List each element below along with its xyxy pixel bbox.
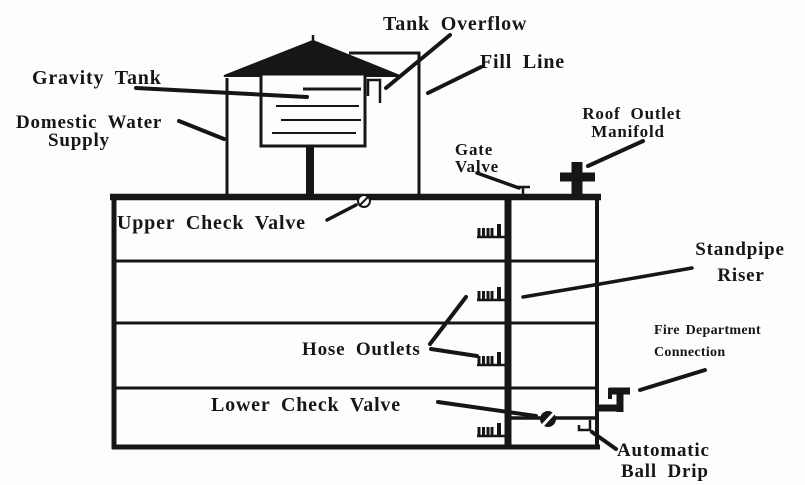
label-upper-check-valve: Upper Check Valve — [117, 212, 306, 234]
label-standpipe-riser-line1: Standpipe — [695, 239, 785, 260]
leader-fire-department-connection — [640, 370, 705, 390]
label-tank-overflow: Tank Overflow — [383, 13, 527, 35]
leader-standpipe-riser — [523, 268, 692, 297]
label-gate-valve-line2: Valve — [455, 157, 499, 176]
label-fire-department-connection-line1: Fire Department — [654, 323, 761, 338]
leader-lower-check-valve — [438, 402, 536, 416]
label-roof-outlet-manifold-line1: Roof Outlet — [582, 104, 681, 123]
fire-department-connection-symbol — [597, 388, 630, 412]
label-gravity-tank: Gravity Tank — [32, 67, 162, 89]
label-hose-outlets: Hose Outlets — [302, 339, 421, 360]
label-domestic-water-supply-line2: Supply — [48, 130, 110, 151]
label-automatic-ball-drip-line2: Ball Drip — [621, 461, 709, 482]
label-lower-check-valve: Lower Check Valve — [211, 394, 401, 416]
gravity-tank-body — [261, 74, 365, 146]
label-fire-department-connection-line2: Connection — [654, 345, 725, 360]
leader-upper-check-valve — [327, 205, 356, 220]
hose-outlet-symbol — [477, 224, 506, 238]
diagram-canvas: Tank Overflow Fill Line Gravity Tank Dom… — [0, 0, 805, 485]
label-roof-outlet-manifold-line2: Manifold — [591, 122, 664, 141]
leader-roof-outlet-manifold — [588, 141, 643, 166]
leader-fill-line — [428, 67, 481, 93]
upper-check-valve-symbol — [358, 195, 370, 207]
tank-roof — [224, 41, 400, 76]
hose-outlet-symbol — [477, 287, 506, 301]
label-automatic-ball-drip-line1: Automatic — [617, 440, 710, 461]
leader-hose-outlets-lower — [431, 349, 477, 356]
gravity-tank-assembly — [224, 35, 419, 199]
leader-hose-outlets-upper — [430, 297, 466, 344]
standpipe-system-diagram: Tank Overflow Fill Line Gravity Tank Dom… — [0, 0, 805, 485]
label-standpipe-riser-line2: Riser — [717, 265, 764, 286]
automatic-ball-drip-symbol — [579, 420, 590, 430]
leader-domestic-water-supply — [179, 121, 224, 139]
hose-outlet-symbol — [477, 352, 506, 366]
label-fill-line: Fill Line — [480, 51, 565, 73]
hose-outlet-symbol — [477, 423, 506, 437]
lower-check-valve-symbol — [540, 411, 556, 427]
tank-overflow-pipe — [368, 80, 380, 103]
